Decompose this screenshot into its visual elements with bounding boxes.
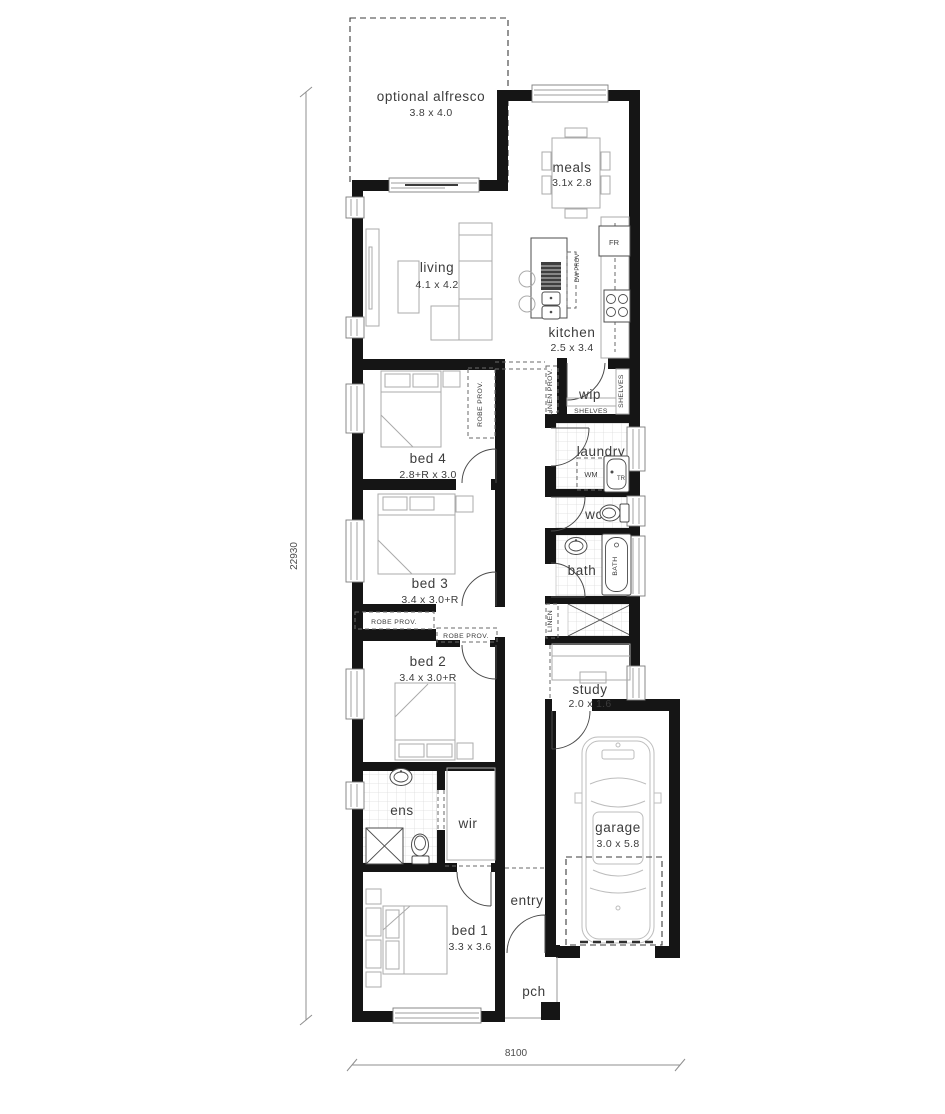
room-label-living: living xyxy=(420,260,454,275)
room-entry: entry xyxy=(510,893,543,908)
laundry-tub-icon: TR xyxy=(604,456,629,492)
floor-plan-canvas: 22930 8100 optional alfresco 3.8 x 4.0 xyxy=(0,0,945,1114)
room-size-bed2: 3.4 x 3.0+R xyxy=(399,672,456,684)
window xyxy=(627,427,645,471)
room-label-wip: wip xyxy=(578,387,601,402)
shelves-label: SHELVES xyxy=(574,408,608,415)
door-arc-bed3 xyxy=(462,572,496,606)
room-bed3: bed 3 3.4 x 3.0+R ROBE PROV. ROBE PROV. xyxy=(355,494,497,642)
garage-setdown-outline xyxy=(566,857,662,945)
room-size-living: 4.1 x 4.2 xyxy=(416,279,459,291)
room-label-kitchen: kitchen xyxy=(549,325,596,340)
window xyxy=(393,1008,481,1023)
room-label-bed3: bed 3 xyxy=(412,576,449,591)
window xyxy=(627,496,645,526)
robe-shelving-icon xyxy=(447,768,495,860)
room-bed1: bed 1 3.3 x 3.6 xyxy=(366,889,491,987)
room-size-alfresco: 3.8 x 4.0 xyxy=(410,107,453,119)
room-bed2: bed 2 3.4 x 3.0+R xyxy=(395,654,473,760)
room-label-bed1: bed 1 xyxy=(452,923,489,938)
window xyxy=(346,782,364,809)
bed-icon xyxy=(378,494,473,574)
tr-label: TR xyxy=(617,476,626,482)
window xyxy=(346,520,364,582)
wm-label: WM xyxy=(584,470,597,479)
room-label-bed2: bed 2 xyxy=(410,654,447,669)
sliding-door xyxy=(389,178,479,192)
room-wc: wc xyxy=(584,504,629,522)
linen-cupboard: LINEN xyxy=(546,604,558,638)
room-alfresco: optional alfresco 3.8 x 4.0 xyxy=(350,18,508,182)
island-bench-icon: DW PROV xyxy=(519,238,581,319)
shower-icon xyxy=(366,828,403,864)
room-bed4: ROBE PROV. bed 4 2.8+R x 3.0 xyxy=(381,368,495,481)
room-size-kitchen: 2.5 x 3.4 xyxy=(551,342,594,354)
bed-icon xyxy=(395,683,473,760)
room-label-bed4: bed 4 xyxy=(410,451,447,466)
dimension-depth-label: 22930 xyxy=(289,542,300,570)
window xyxy=(532,85,608,102)
drainer-icon xyxy=(541,262,561,290)
bathtub-icon: BATH xyxy=(602,534,631,595)
robe-prov-label: ROBE PROV. xyxy=(477,381,484,427)
toilet-icon xyxy=(412,834,430,864)
room-size-bed4: 2.8+R x 3.0 xyxy=(399,469,456,481)
room-label-ens: ens xyxy=(390,803,414,818)
floor-plan-page: 22930 8100 optional alfresco 3.8 x 4.0 xyxy=(0,0,945,1114)
fridge-icon: FR xyxy=(599,226,630,256)
linen-label: LINEN xyxy=(547,610,554,632)
shelves-label: SHELVES xyxy=(618,374,625,408)
door-arc-garage xyxy=(552,711,590,749)
room-label-garage: garage xyxy=(595,820,641,835)
robe-icon: ROBE PROV. xyxy=(437,628,497,642)
robe-icon: ROBE PROV. xyxy=(355,612,434,629)
room-meals: meals 3.1x 2.8 xyxy=(542,128,610,218)
fridge-label: FR xyxy=(609,238,620,247)
dimension-width: 8100 xyxy=(347,1048,685,1071)
room-size-bed3: 3.4 x 3.0+R xyxy=(401,594,458,606)
bath-tub-label: BATH xyxy=(612,556,619,575)
door-arc-entry xyxy=(507,915,545,953)
basin-icon xyxy=(565,538,587,555)
room-label-alfresco: optional alfresco xyxy=(377,89,486,104)
room-label-bath: bath xyxy=(568,563,597,578)
dimension-depth: 22930 xyxy=(289,87,312,1025)
room-size-bed1: 3.3 x 3.6 xyxy=(449,941,492,953)
room-label-pch: pch xyxy=(522,984,546,999)
door-arc-bed1 xyxy=(457,872,491,906)
desk-icon xyxy=(552,644,630,683)
room-label-study: study xyxy=(572,682,607,697)
room-wir: wir xyxy=(447,768,495,860)
robe-icon: ROBE PROV. xyxy=(468,368,495,438)
tv-unit-icon xyxy=(366,229,379,326)
linen-prov: LINEN PROV. xyxy=(546,366,558,415)
ens-slider-opening xyxy=(437,790,445,830)
room-wip: wip SHELVES SHELVES xyxy=(567,369,629,415)
robe-prov-label: ROBE PROV. xyxy=(443,633,489,640)
room-kitchen: FR DW PROV kitchen 2.5 x 3.4 xyxy=(519,217,630,358)
room-label-meals: meals xyxy=(552,160,591,175)
bed-icon xyxy=(366,889,447,987)
window xyxy=(346,384,364,433)
robe-prov-label: ROBE PROV. xyxy=(371,619,417,626)
sink-icon xyxy=(542,292,560,319)
bed-icon xyxy=(381,371,460,447)
linen-prov-label: LINEN PROV. xyxy=(547,369,554,416)
cooktop-icon xyxy=(604,290,630,322)
basin-icon xyxy=(390,769,412,786)
door-arc-bed2 xyxy=(462,645,496,679)
room-size-meals: 3.1x 2.8 xyxy=(552,177,592,189)
room-living: living 4.1 x 4.2 xyxy=(366,223,492,340)
room-label-entry: entry xyxy=(510,893,543,908)
dimension-width-label: 8100 xyxy=(505,1048,528,1059)
room-garage: garage 3.0 x 5.8 xyxy=(566,737,662,945)
room-label-wir: wir xyxy=(457,816,477,831)
room-size-study: 2.0 x 1.6 xyxy=(569,698,612,710)
door-arc-bed4 xyxy=(462,449,496,483)
window xyxy=(346,669,364,719)
dw-prov-label: DW PROV xyxy=(575,254,581,283)
window xyxy=(346,317,364,338)
room-size-garage: 3.0 x 5.8 xyxy=(597,838,640,850)
window xyxy=(346,197,364,218)
toilet-icon xyxy=(600,504,629,522)
